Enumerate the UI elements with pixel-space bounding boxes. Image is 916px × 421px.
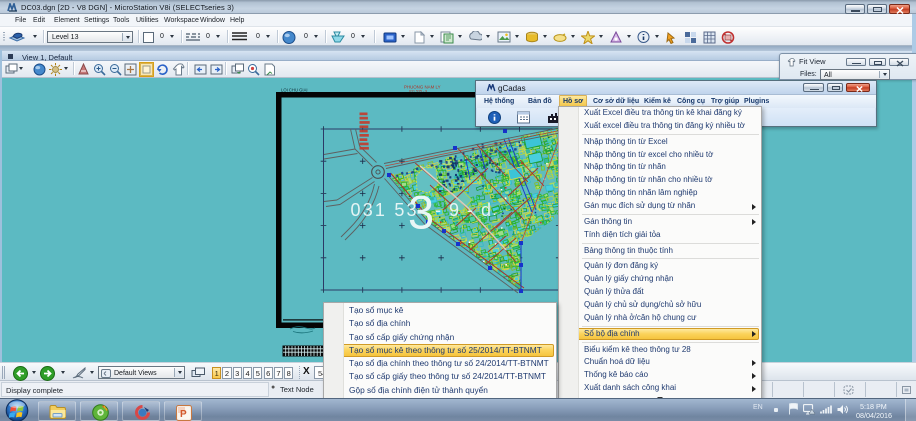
svg-text:LOI CHU GIAI: LOI CHU GIAI [281, 88, 308, 93]
svg-text:3: 3 [408, 186, 434, 239]
svg-text:- 9 - d: - 9 - d [435, 200, 493, 220]
svg-text:P: P [180, 409, 187, 420]
